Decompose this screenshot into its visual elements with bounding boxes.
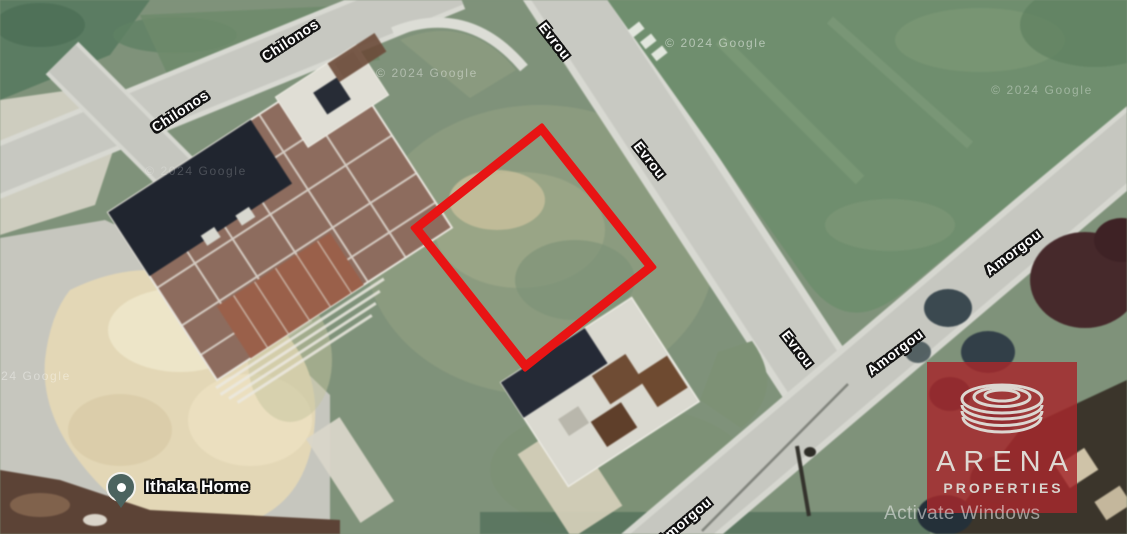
map-viewport[interactable]: Chilonos Chilonos Evrou Evrou Evrou Amor… [0, 0, 1127, 534]
copyright-watermark: © 2024 Google [665, 36, 767, 50]
place-marker[interactable]: Ithaka Home [106, 472, 249, 512]
agency-subtitle: PROPERTIES [940, 480, 1063, 496]
place-pin-icon[interactable] [106, 472, 136, 512]
copyright-watermark: © 2024 Google [0, 369, 71, 383]
pin-dot [117, 483, 126, 492]
coil-logo-icon [954, 379, 1050, 443]
agency-name: ARENA [928, 447, 1076, 477]
activate-windows-watermark: Activate Windows [884, 503, 1040, 525]
agency-logo: ARENA PROPERTIES [927, 362, 1077, 513]
copyright-watermark: © 2024 Google [991, 83, 1093, 97]
copyright-watermark: © 2024 Google [145, 164, 247, 178]
place-label: Ithaka Home [145, 477, 249, 497]
pin-tail [114, 498, 128, 515]
copyright-watermark: © 2024 Google [376, 66, 478, 80]
